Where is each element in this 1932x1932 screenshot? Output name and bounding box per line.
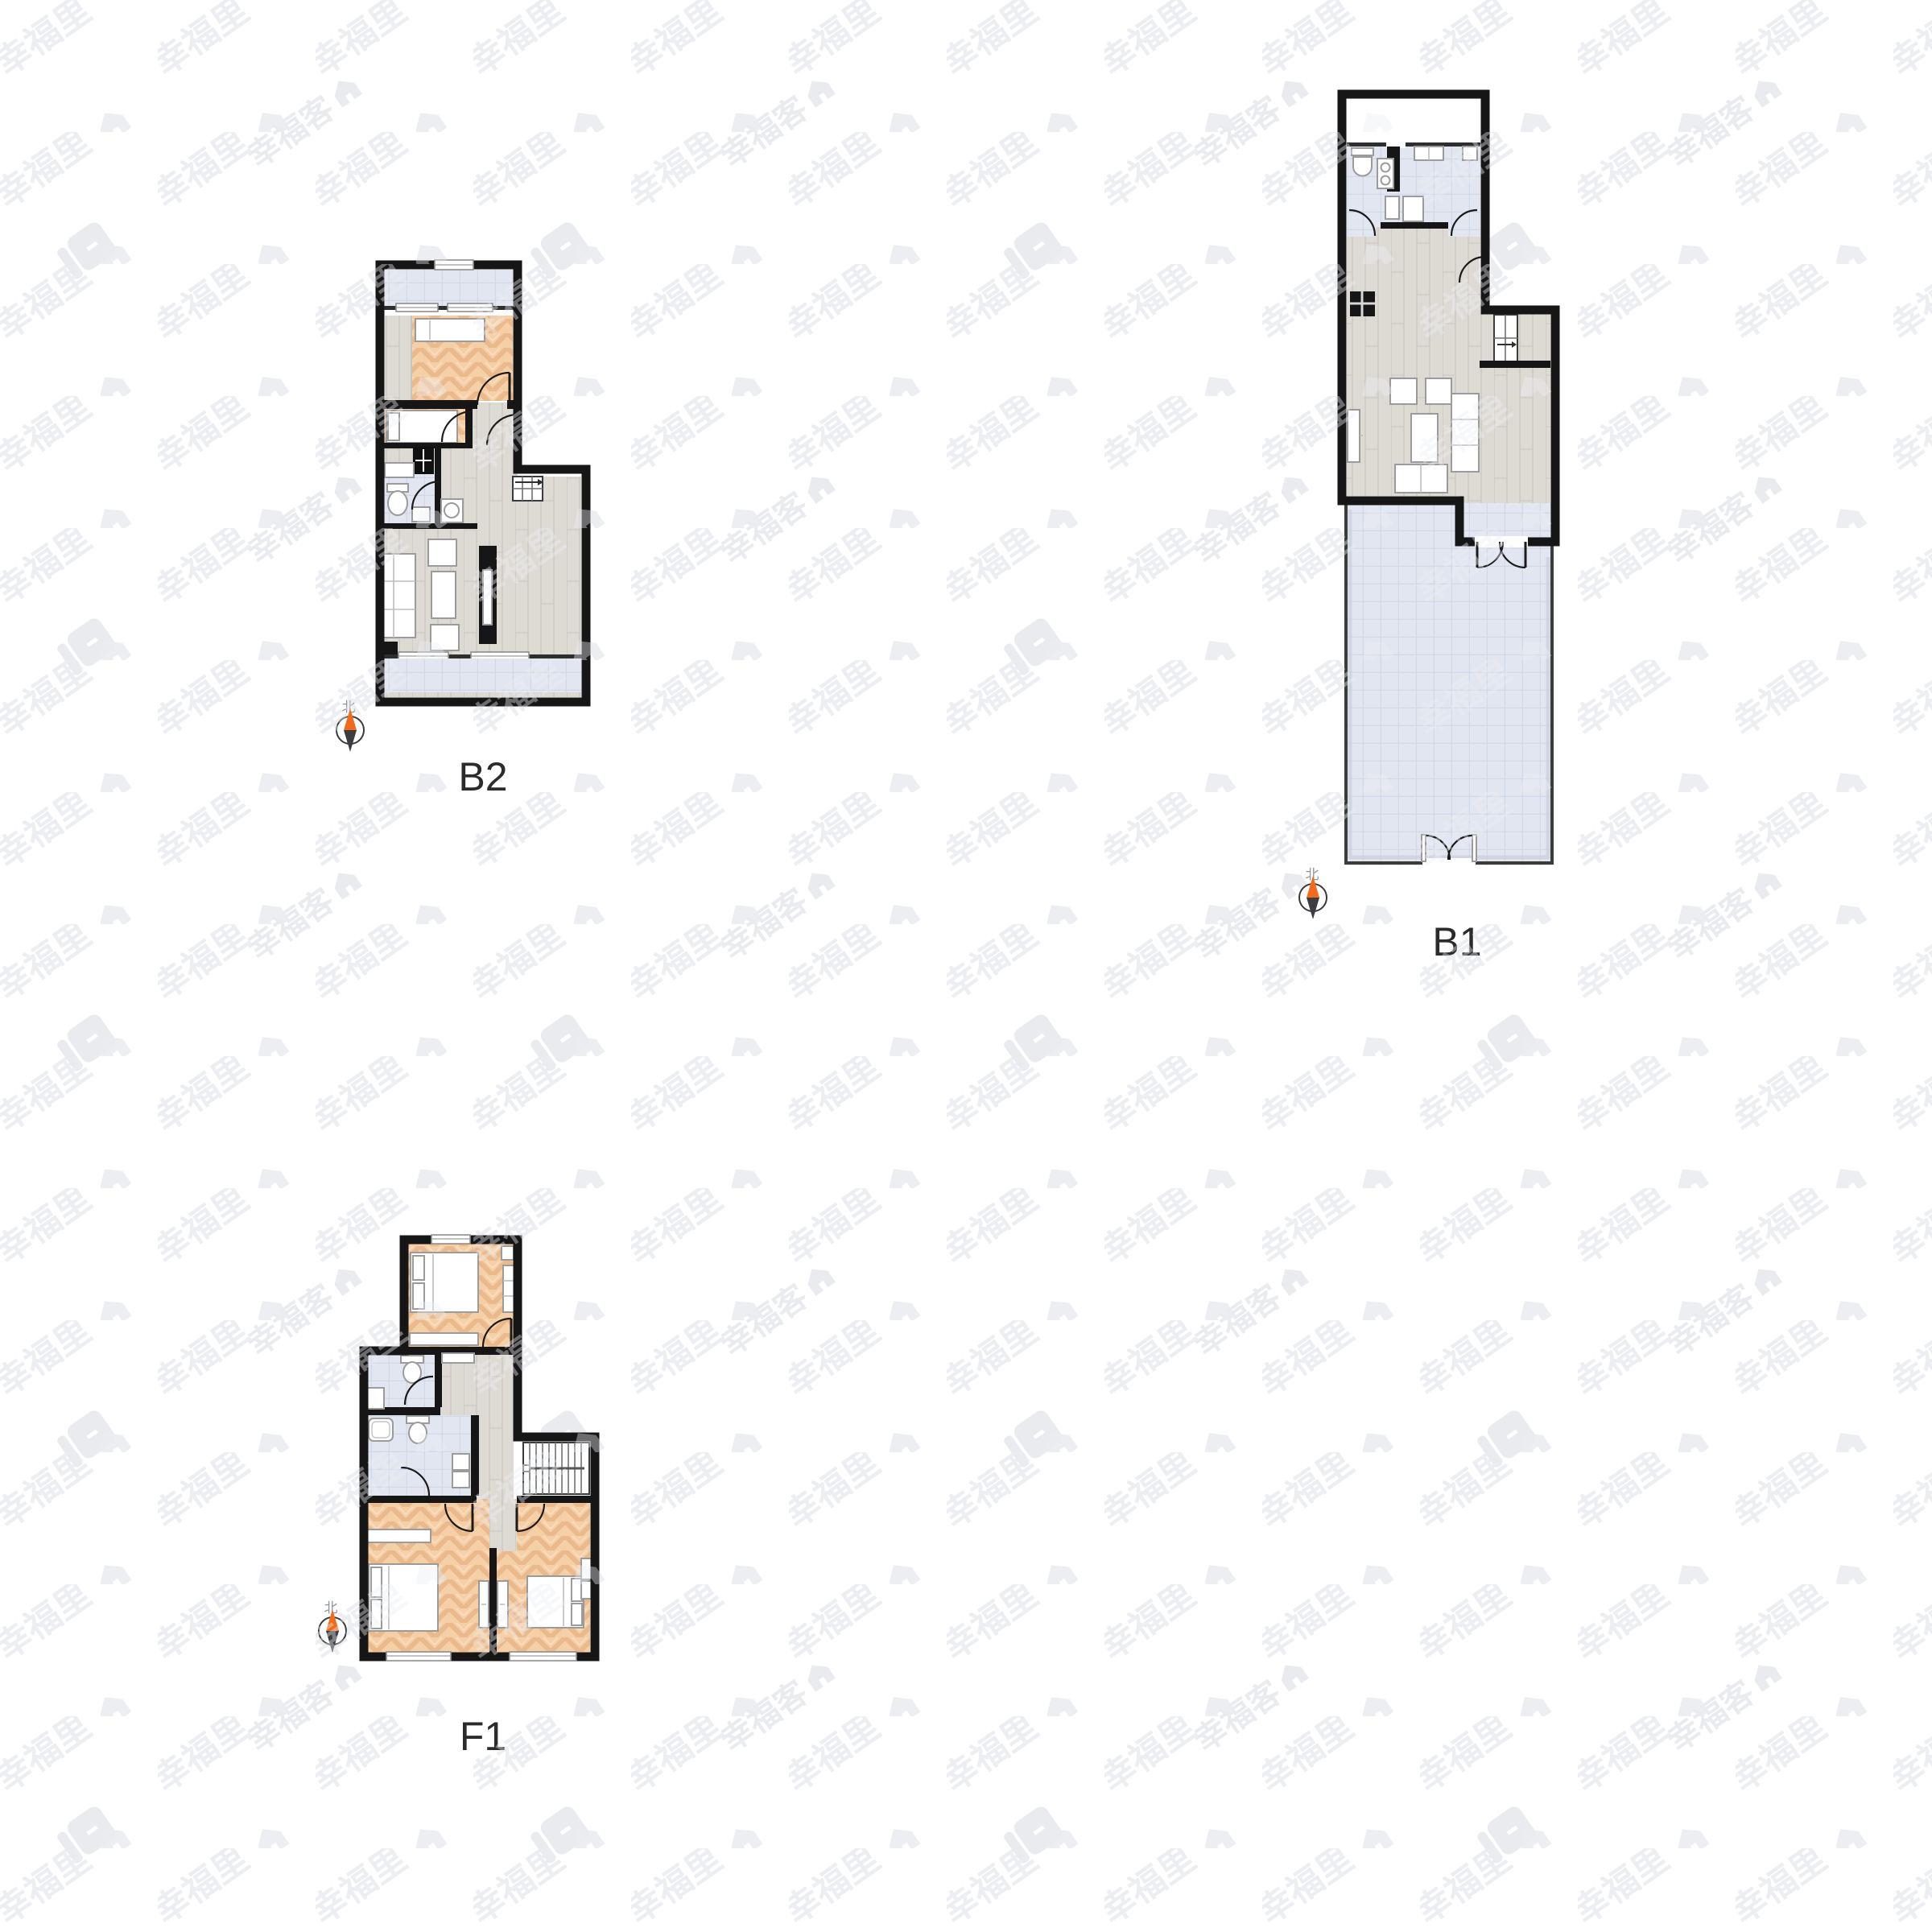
- floor-plan-sheet: 幸福里 幸福客: [0, 0, 1932, 1932]
- watermark-overlay: [0, 0, 1932, 1932]
